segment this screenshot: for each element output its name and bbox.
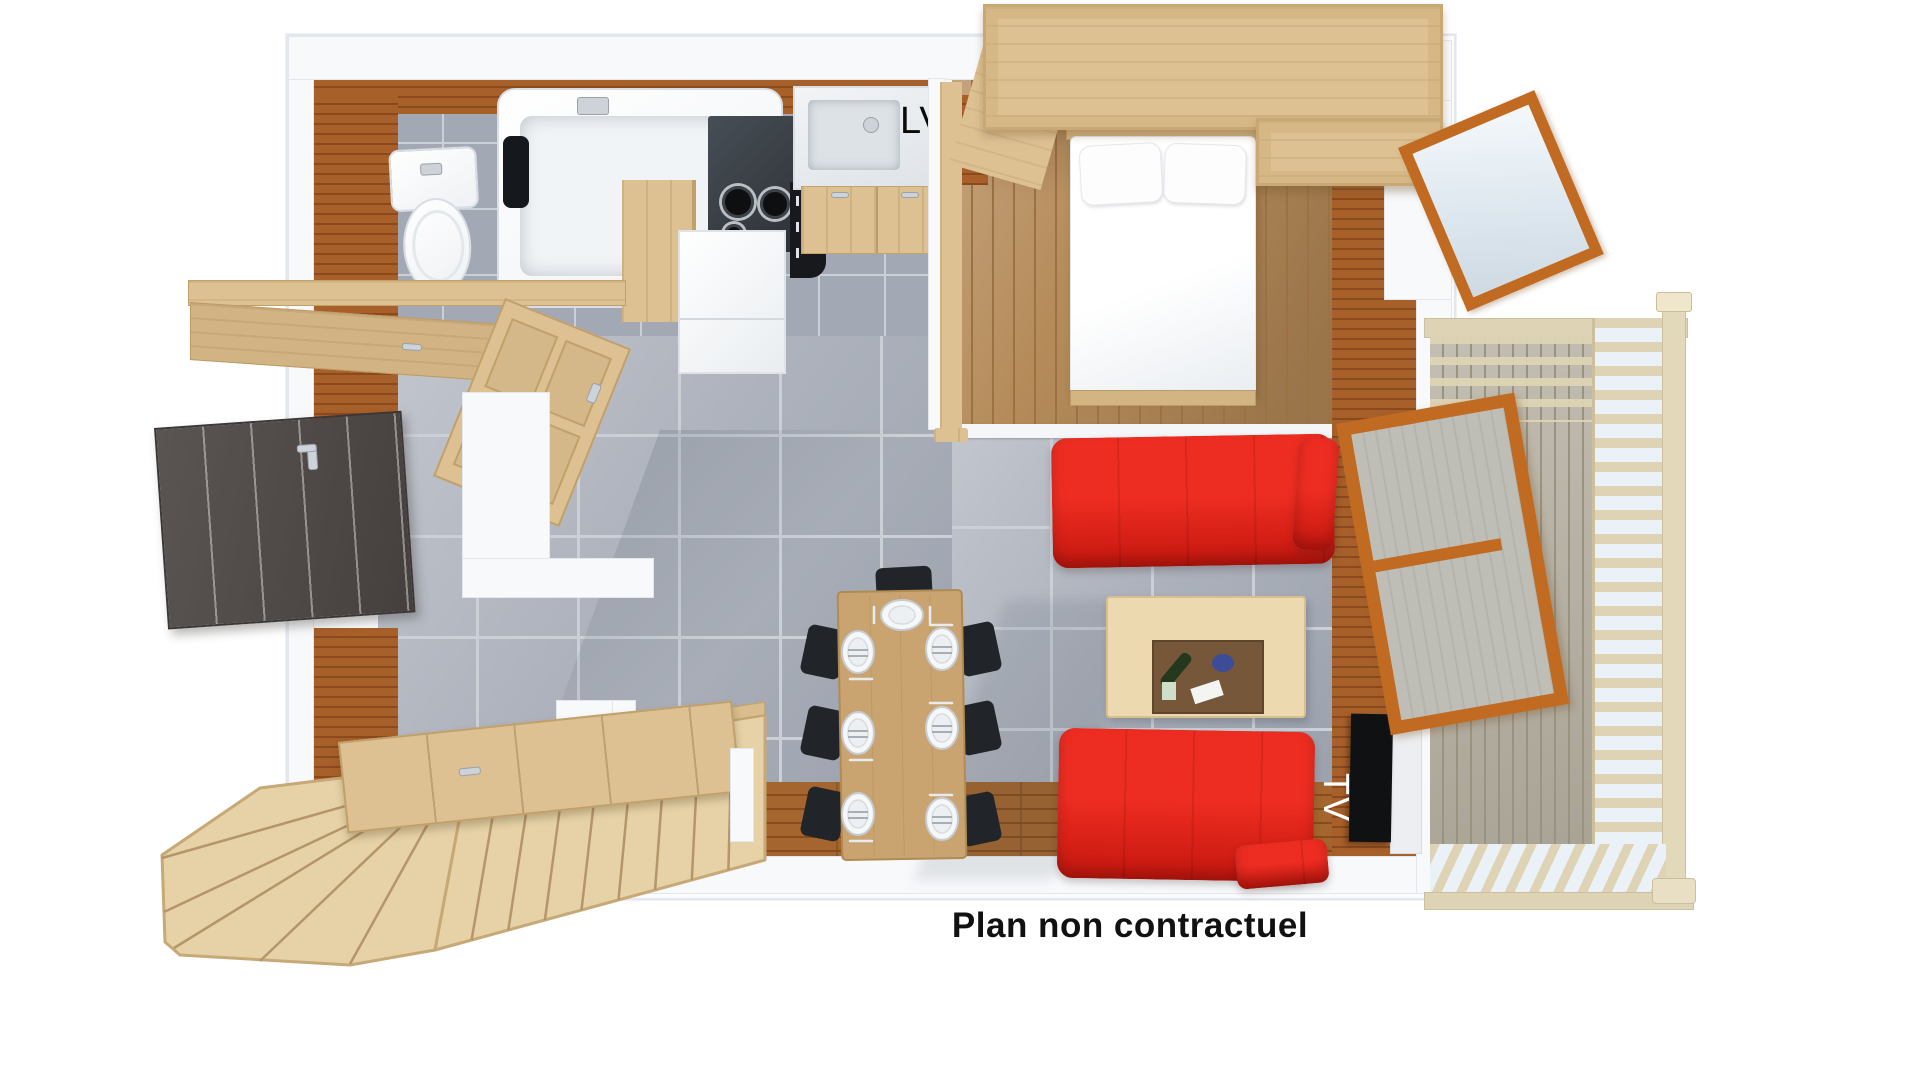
oven-handle-icon [796,196,799,206]
entry-door-handle-icon [298,445,316,452]
dining-set [790,555,1090,875]
sofa-top [1051,434,1335,569]
coffee-table [1106,596,1306,718]
balcony-corner-post [1662,300,1686,898]
entry-door-open [154,411,415,630]
door-middle-rail [1373,538,1502,572]
balcony-railing-right [1592,318,1669,884]
cabinet-divider [876,187,878,253]
sink-basin [808,100,900,170]
floor-plan-render: LV [0,0,1920,1080]
post-cap [1656,292,1692,312]
serving-tray [1152,640,1264,714]
grapes-icon [1212,654,1234,672]
oven-handle-icon [796,222,799,232]
cooktop-burner-2 [760,189,790,219]
cooktop-burner-1 [722,186,754,218]
cabinet-handle-icon [832,193,848,197]
bathroom-left-wall [312,95,398,460]
oven-handle-icon [796,248,799,258]
pillow [1078,142,1163,206]
closet-doors-top-edge [188,280,626,306]
door-jamb [730,748,754,842]
top-outer-wall [288,36,990,80]
napkin-icon [1190,680,1223,704]
interior-door-handle-icon [460,767,481,775]
bathtub-headrest [503,136,529,208]
plan-caption: Plan non contractuel [760,906,1500,946]
divider-post-foot [934,428,968,442]
sink-faucet-icon [864,118,878,132]
closet-handle-icon [403,344,421,350]
bathtub-faucet-icon [578,98,608,114]
toilet [388,146,486,301]
closet-partition-horizontal [462,558,654,598]
mezzanine-canopy [983,4,1443,130]
appliance-door-line [680,318,784,320]
bed-footboard [1070,390,1256,406]
balcony-railing-bottom [1430,844,1666,896]
pillow [1163,143,1247,206]
dishwasher-appliance [678,230,786,374]
tv-label: TV [1312,746,1360,850]
tv-label-text: TV [1315,773,1357,823]
post-foot [1652,878,1696,904]
card-icon [1162,682,1176,700]
cabinet-handle-icon [902,193,918,197]
sofa-top-arm [1292,437,1340,552]
toilet-flush-button [421,164,441,175]
